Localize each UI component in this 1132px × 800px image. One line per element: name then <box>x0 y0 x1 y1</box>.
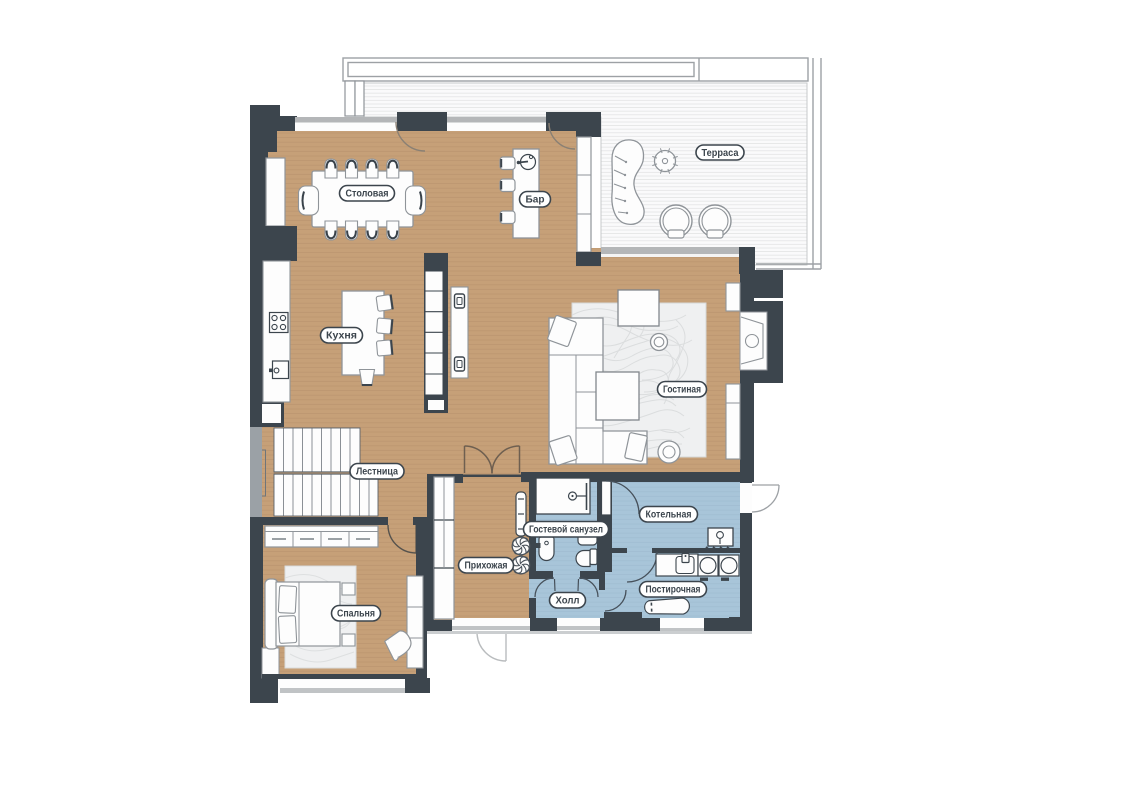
svg-text:Бар: Бар <box>526 195 545 206</box>
svg-text:Спальня: Спальня <box>337 609 375 620</box>
svg-text:Столовая: Столовая <box>346 189 389 200</box>
svg-text:Гостиная: Гостиная <box>663 385 701 396</box>
svg-text:Гостевой санузел: Гостевой санузел <box>529 525 603 536</box>
svg-text:Лестница: Лестница <box>356 467 398 478</box>
svg-text:Прихожая: Прихожая <box>465 561 508 572</box>
svg-text:Котельная: Котельная <box>646 510 692 521</box>
svg-text:Холл: Холл <box>556 596 580 607</box>
svg-text:Постирочная: Постирочная <box>646 585 701 596</box>
svg-text:Терраса: Терраса <box>702 148 739 159</box>
svg-text:Кухня: Кухня <box>326 331 357 342</box>
